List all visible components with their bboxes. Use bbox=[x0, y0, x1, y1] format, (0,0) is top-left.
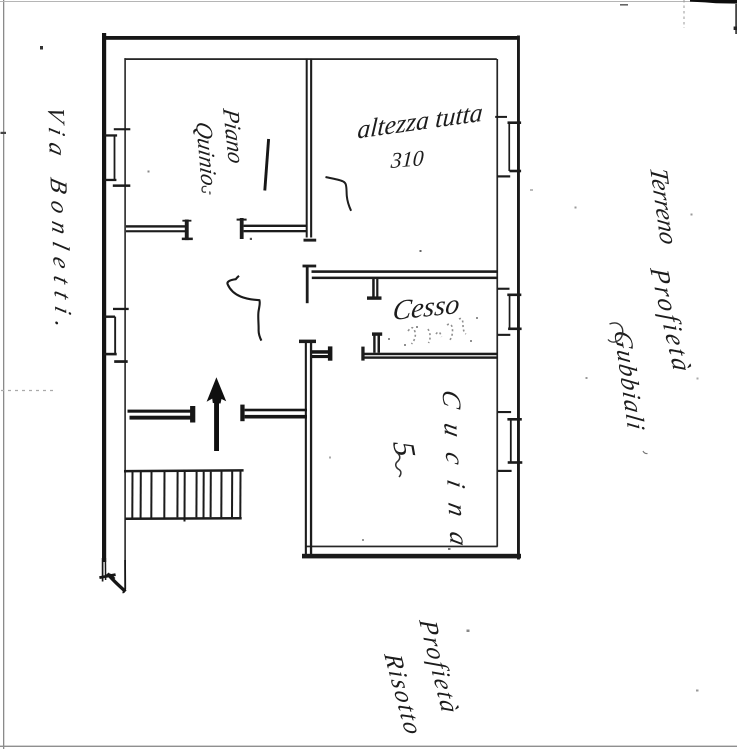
svg-text:5: 5 bbox=[386, 441, 423, 457]
svg-text:310: 310 bbox=[389, 145, 424, 173]
